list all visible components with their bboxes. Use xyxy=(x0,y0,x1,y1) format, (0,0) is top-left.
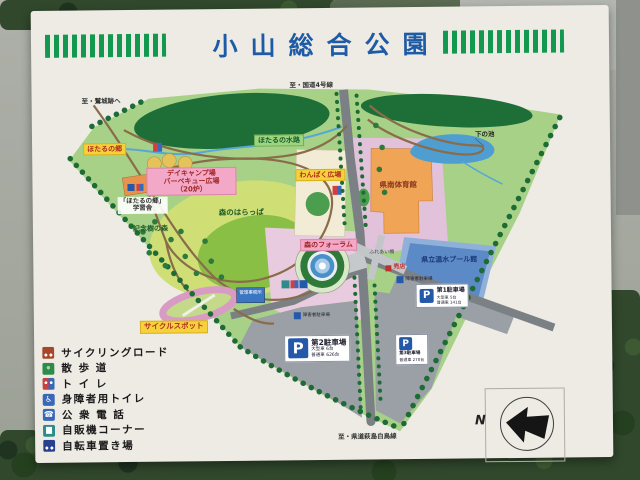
public-phone-icon: ☎ xyxy=(43,409,55,421)
legend-label: 身障者用トイレ xyxy=(62,391,146,407)
legend-label: ト イ レ xyxy=(61,376,107,391)
label-accessible-parking-2: 障害者駐車場 xyxy=(303,313,330,318)
label-cycle-spot: サイクルスポット xyxy=(140,320,208,333)
parking-1-sign: P 第1駐車場 大型車 5台 普通車 141台 xyxy=(416,283,469,307)
label-pool: 県立温水プール館 xyxy=(421,255,477,264)
toilet-icon xyxy=(290,280,298,288)
toilet-icon xyxy=(153,143,162,152)
label-kinenju: 記念樹の森 xyxy=(133,225,168,233)
gakushusha-line2: 学習舎 xyxy=(120,205,166,213)
direction-kendo: 至・県道萩島白鳥線 xyxy=(338,433,397,441)
legend-row: 自転車置き場 xyxy=(43,439,170,452)
legend-row: 自販機コーナー xyxy=(43,423,170,436)
parking-3-normal: 普通車 270台 xyxy=(399,357,424,362)
wheelchair-icon xyxy=(396,276,403,283)
label-accessible-parking-1: 障害者駐車場 xyxy=(405,277,432,282)
label-kanri: 管理事務所 xyxy=(238,291,264,296)
day-camp-line3: （20炉） xyxy=(150,185,232,194)
bicycle-parking-icon xyxy=(43,440,55,452)
wheelchair-icon xyxy=(127,184,134,191)
legend-label: 散 歩 道 xyxy=(61,360,107,375)
north-label: N xyxy=(475,414,486,429)
legend-label: サイクリングロード xyxy=(61,344,169,360)
toilet-icon xyxy=(332,186,341,195)
parking-icon: P xyxy=(399,337,412,350)
label-gym: 県南体育館 xyxy=(379,181,417,190)
legend-row: ト イ レ xyxy=(42,377,169,390)
legend-label: 自転車置き場 xyxy=(62,437,134,453)
vending-icon xyxy=(281,280,289,288)
shop-icon xyxy=(385,265,391,271)
toilet-icon xyxy=(136,184,143,191)
parking-icon: P xyxy=(288,338,308,358)
vending-corner-icon xyxy=(43,424,55,436)
parking-2-normal: 普通車 626台 xyxy=(311,353,346,359)
north-arrow-icon xyxy=(501,398,554,451)
wheelchair-icon xyxy=(294,312,301,319)
pole xyxy=(616,0,640,215)
label-wanpaku: わんぱく広場 xyxy=(295,169,345,182)
label-hotaru-sato: ほたるの郷 xyxy=(83,143,126,155)
legend-row: 散 歩 道 xyxy=(42,361,169,374)
label-day-camp: デイキャンプ場 バーベキュー広場 （20炉） xyxy=(146,167,236,196)
parking-2-sign: P 第2駐車場 大型車 6台 普通車 626台 xyxy=(284,335,350,362)
label-fureai-bashi: ふれあい橋 xyxy=(369,250,394,256)
label-forum: 森のフォーラム xyxy=(300,239,357,252)
foliage-bottom-left xyxy=(0,430,40,480)
direction-washijo: 至・鷲城跡へ xyxy=(82,98,121,106)
photo-scene: 小山総合公園 xyxy=(0,0,640,480)
label-hotaru-suiro: ほたるの水路 xyxy=(254,134,304,147)
cycling-road-icon xyxy=(42,347,54,359)
toilet-icon xyxy=(42,378,54,390)
parking-1-normal: 普通車 141台 xyxy=(437,299,465,304)
walking-path-icon xyxy=(42,362,54,374)
legend-label: 自販機コーナー xyxy=(62,422,146,438)
legend-row: ☎ 公 衆 電 話 xyxy=(43,408,170,421)
legend-row: ♿ 身障者用トイレ xyxy=(43,392,170,405)
parking-icon: P xyxy=(420,289,434,303)
park-sign-board: 小山総合公園 xyxy=(31,5,614,463)
legend-label: 公 衆 電 話 xyxy=(62,407,126,423)
legend-row: サイクリングロード xyxy=(42,346,169,359)
label-baiten: 売店 xyxy=(393,264,405,271)
parking-3-sign: P 第3駐車場 普通車 270台 xyxy=(395,334,428,365)
direction-route4: 至・国道4号線 xyxy=(289,82,333,90)
accessible-toilet-icon: ♿ xyxy=(43,393,55,405)
label-mori-harappa: 森のはらっぱ xyxy=(219,209,264,218)
wheelchair-icon xyxy=(299,280,307,288)
compass xyxy=(485,387,566,462)
label-gakushusha: 「ほたるの郷」 学習舎 xyxy=(118,197,168,214)
map-legend: サイクリングロード 散 歩 道 ト イ レ ♿ 身障者用トイレ ☎ 公 衆 電 … xyxy=(42,346,170,452)
label-shimo-ike: 下の池 xyxy=(475,131,495,139)
compass-circle xyxy=(500,397,555,452)
